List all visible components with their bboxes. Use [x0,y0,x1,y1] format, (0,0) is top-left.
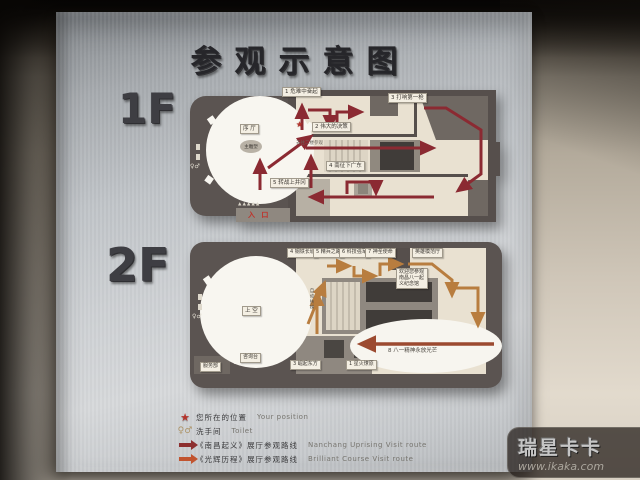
legend-row-route-1f: 《南昌起义》展厅参观路线 Nanchang Uprising Visit rou… [174,438,514,452]
sign-title: 参观示意图 [56,36,532,81]
route-1f-arrow-icon [179,443,192,447]
legend: ★ 您所在的位置 Your position ♀♂ 洗手间 Toilet 《南昌… [174,410,514,466]
toilet-icon-2f: ♀♂ [192,314,202,320]
floor1-plan: 1 危难中奋起 2 伟大的决策 3 打响第一枪 4 南征下广东 5 转战上井冈 … [184,84,504,229]
hall-1f-label: 序 厅 [240,124,259,134]
escalator-label: 自动扶梯 [308,288,314,310]
sign-panel: 参观示意图 1F [56,12,532,472]
main-sculpture-label: 主雕塑 [240,140,262,153]
legend-toilet-zh: 洗手间 [196,426,222,437]
legend-row-route-2f: 《光辉历程》展厅参观路线 Brilliant Course Visit rout… [174,452,514,466]
station-2f-3: 3 崛起东方 [290,360,321,370]
thanks-box: 欢迎您参观 南昌八一起 义纪念馆 [396,268,428,289]
station-2f-1: 1 星火燎原 [346,360,377,370]
station-1f-1: 1 危难中奋起 [282,87,321,97]
to-2f-note: 去往二楼参观 [296,140,323,146]
route-2f-arrow-icon [179,457,192,461]
watermark-badge: 瑞星卡卡 www.ikaka.com [507,427,640,478]
station-2f-7: 7 神圣使命 [365,248,396,258]
toilet-icon: ♀♂ [178,427,193,436]
service-desk-label: 服务部 [200,362,221,372]
your-position-star: ★ [296,121,303,129]
legend-position-zh: 您所在的位置 [196,412,247,423]
floor2-label: 2F [106,238,169,292]
legend-row-toilet: ♀♂ 洗手间 Toilet [174,424,514,438]
floor2-plan: 4 钢铁长城 5 精兵之路 6 科技强军 7 神圣使命 英雄模范厅 欢迎您参观 … [184,232,509,397]
thanks-line-3: 义纪念馆 [399,282,425,288]
station-1f-4: 4 南征下广东 [326,161,365,171]
position-star-icon: ★ [180,412,190,423]
shadow-left [0,0,72,480]
legend-route2-zh: 《光辉历程》展厅参观路线 [196,454,298,465]
legend-row-position: ★ 您所在的位置 Your position [174,410,514,424]
station-1f-3: 3 打响第一枪 [388,93,427,103]
station-1f-2: 2 伟大的决策 [312,122,351,132]
photo-background: 参观示意图 1F [0,0,640,480]
station-2f-8: 8 八一精神永放光芒 [388,346,437,354]
toilet-icon-1f: ♀♂ [190,164,200,170]
legend-toilet-en: Toilet [232,427,253,435]
legend-route1-en: Nanchang Uprising Visit route [308,441,427,449]
legend-route1-zh: 《南昌起义》展厅参观路线 [196,440,298,451]
hall-2f-label: 上 空 [242,306,261,316]
info-desk-label: 咨询台 [240,353,261,363]
legend-route2-en: Brilliant Course Visit route [308,455,413,463]
station-1f-5: 5 转战上井冈 [270,178,309,188]
legend-position-en: Your position [257,413,308,421]
entrance-label: 入 口 [248,210,270,220]
floor1-map [184,84,504,229]
hero-hall-label: 英雄模范厅 [412,248,443,258]
watermark-brand: 瑞星卡卡 [518,433,640,460]
entrance-canopy: ▲▲▲▲▲ [238,202,260,207]
watermark-url: www.ikaka.com [518,460,640,473]
floor1-label: 1F [118,84,176,133]
